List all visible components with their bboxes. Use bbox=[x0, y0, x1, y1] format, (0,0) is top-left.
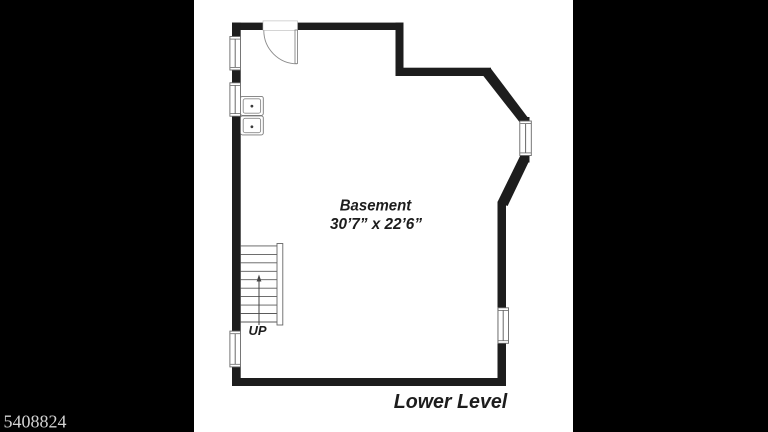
svg-text:Lower Level: Lower Level bbox=[394, 390, 509, 413]
svg-text:UP: UP bbox=[248, 323, 266, 338]
svg-text:5408824: 5408824 bbox=[4, 411, 67, 431]
svg-text:30’7” x 22’6”: 30’7” x 22’6” bbox=[330, 216, 422, 233]
svg-text:Basement: Basement bbox=[340, 198, 412, 215]
